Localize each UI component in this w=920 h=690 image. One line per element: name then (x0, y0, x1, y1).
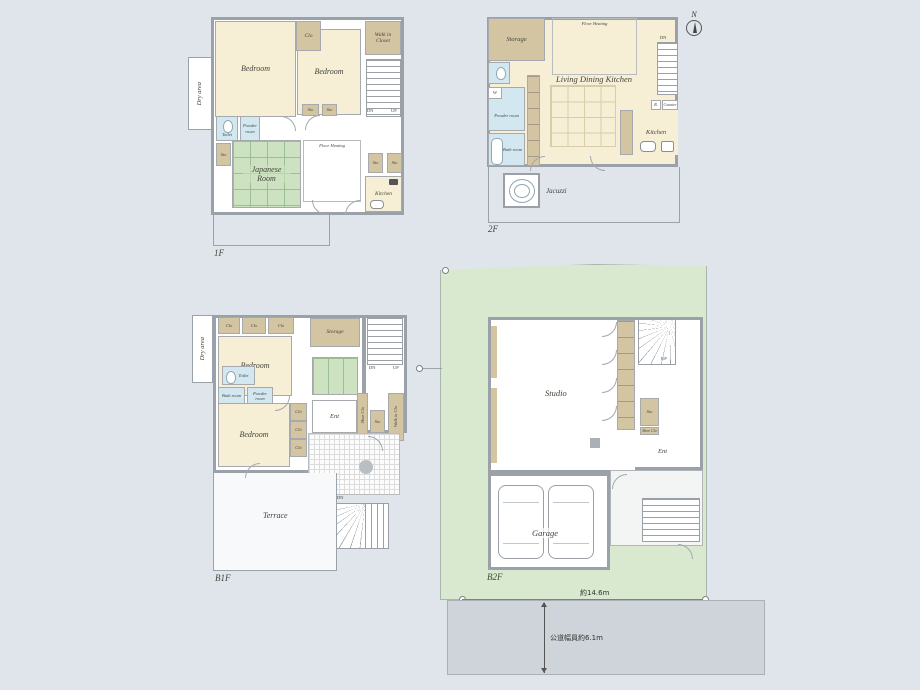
storage-b1f: Storage (310, 318, 360, 347)
car-icon (498, 485, 544, 559)
room-label: Floor Heating (582, 21, 608, 26)
counter-2f: Counter (662, 100, 678, 110)
road-width-label: 公道幅員約6.1m (550, 633, 603, 643)
clo-b1f-f: Clo (290, 439, 307, 457)
storage-2f: Storage (488, 18, 545, 61)
floor-heating-2f: Floor Heating (552, 18, 637, 75)
room-label: Toilet (238, 373, 248, 378)
floorplan-sheet: Dry area Bedroom Bedroom Clo Sto Sto Wal… (0, 0, 920, 690)
room-label: Sto (327, 107, 333, 112)
room-label: Clo (295, 427, 302, 432)
shoe-clo-b2f: Shoe Clo (640, 427, 659, 435)
room-label: Sto (221, 152, 227, 157)
road-dim-line (544, 603, 545, 673)
toilet-icon (223, 120, 233, 133)
bath-room-2f: Bath room (488, 133, 525, 166)
sink-icon (640, 141, 656, 152)
toilet-b1f: Toilet (222, 366, 255, 385)
floor-label-2f: 2F (488, 224, 498, 234)
ent-b1f: Ent (312, 400, 357, 433)
room-label: Japanese Room (243, 165, 291, 183)
room-label: Storage (326, 329, 343, 335)
stairs-up-label: UP (391, 108, 397, 113)
toilet-icon (496, 67, 506, 80)
room-label: Shoe Clo (360, 407, 365, 423)
room-label: Clo (278, 323, 285, 328)
terrace-label: Terrace (263, 511, 288, 520)
floor-label-1f: 1F (214, 248, 224, 258)
spiral-dn-label: DN (337, 495, 344, 500)
floor-grid-2f (550, 85, 616, 147)
kitchen-2f: Kitchen (634, 110, 678, 155)
room-label: Sto (392, 160, 398, 165)
room-label: R. (654, 102, 658, 107)
boundary-marker (442, 267, 449, 274)
room-label: Clo (305, 33, 313, 39)
room-label: Clo (226, 323, 233, 328)
floor-heating-1f: Floor Heating (303, 140, 361, 202)
toilet-2f (488, 62, 510, 84)
clo-b1f-a: Clo (218, 317, 240, 334)
room-label: Clo (251, 323, 258, 328)
jacuzzi-label: Jacuzzi (546, 187, 567, 195)
car-icon (548, 485, 594, 559)
clo-b1f-d: Clo (290, 403, 307, 421)
clo-b1f-c: Clo (268, 317, 294, 334)
exterior-stairs-b2f (642, 498, 700, 542)
room-label: Kitchen (375, 191, 392, 197)
room-label: Walk in Clo (393, 406, 398, 427)
room-label: Storage (506, 36, 526, 43)
column-icon (359, 460, 373, 474)
toilet-icon (226, 371, 236, 384)
ldk-label: Living Dining Kitchen (556, 74, 632, 84)
sto-1f-a: Sto (302, 104, 319, 116)
room-label: Powder room (494, 113, 520, 118)
sto-1f-c: Sto (216, 143, 231, 166)
dry-area-1f: Dry area (188, 57, 212, 130)
closet-column-b2f (617, 320, 635, 430)
toilet-1f: Toilet (216, 116, 238, 141)
jacuzzi-2f (503, 173, 540, 208)
boundary-marker (416, 365, 423, 372)
stairs-dn-label: DN (660, 35, 667, 40)
storage-column-2f (527, 75, 540, 166)
clo-b1f-e: Clo (290, 421, 307, 439)
plan-b1f: Dry area Clo Clo Clo Storage Bedroom DN … (185, 308, 440, 583)
room-label: W (493, 90, 497, 95)
floor-label-b2f: B2F (487, 572, 503, 582)
room-label: Ent (330, 413, 339, 420)
plan-b2f: Studio UP Sto Shoe Clo Ent Garage B2F 約1… (440, 258, 770, 603)
terrace-b1f (213, 473, 337, 571)
room-label: Sto (375, 419, 381, 424)
bedroom-1f-a: Bedroom (215, 21, 296, 117)
shoe-clo-b1f: Shoe Clo (357, 393, 368, 438)
plan-1f: Dry area Bedroom Bedroom Clo Sto Sto Wal… (185, 12, 437, 262)
room-label: Powder room (249, 391, 271, 401)
room-label: Walk in Closet (369, 32, 397, 45)
fridge-2f: R. (651, 100, 661, 110)
balcony-1f (213, 215, 330, 246)
stairs-dn-label: DN (367, 108, 374, 113)
room-label: Kitchen (646, 129, 666, 136)
room-label: Powder room (241, 123, 259, 133)
washer-2f: W (488, 87, 502, 99)
room-label: Bath room (222, 393, 242, 398)
closet-1f: Clo (296, 21, 321, 51)
room-label: Dry area (199, 337, 206, 360)
powder-room-1f: Powder room (240, 116, 260, 141)
floor-label-b1f: B1F (215, 573, 231, 583)
clo-b1f-b: Clo (242, 317, 266, 334)
compass-icon (686, 20, 702, 36)
room-label: Bedroom (239, 430, 268, 439)
kitchen-1f: Kitchen (365, 176, 402, 212)
compass: N (684, 10, 704, 36)
wall-strip (491, 326, 497, 378)
stove-icon (661, 141, 674, 152)
floor-hatch-icon (590, 438, 600, 448)
stairs-b2f (638, 319, 676, 365)
road: 公道幅員約6.1m (447, 600, 765, 675)
north-label: N (691, 10, 696, 19)
ent-label-b2f: Ent (658, 448, 667, 455)
japanese-room-1f: Japanese Room (232, 140, 301, 208)
plan-2f: Storage Floor Heating Living Dining Kitc… (470, 10, 718, 232)
dry-area-label: Dry area (196, 82, 203, 105)
room-label: Bath room (502, 147, 524, 152)
stairs-up-label: UP (393, 365, 399, 370)
walkin-closet-1f: Walk in Closet (365, 21, 401, 55)
kitchen-counter-2f (620, 110, 633, 155)
frontage-dim-label: 約14.6m (580, 588, 609, 598)
room-label: Sto (308, 107, 314, 112)
dim-arrow-down (541, 668, 547, 673)
stairs-dn-label: DN (369, 365, 376, 370)
bedroom-b1f-b: Bedroom (218, 403, 290, 467)
stairs-2f (657, 42, 678, 95)
stairs-up-label: UP (661, 356, 667, 361)
jacuzzi-icon (509, 179, 535, 203)
dim-arrow-up (541, 602, 547, 607)
dry-area-b1f: Dry area (192, 315, 213, 383)
room-label: Clo (295, 409, 302, 414)
sto-1f-e: Sto (387, 153, 402, 173)
stove-icon (389, 179, 398, 185)
sto-1f-b: Sto (322, 104, 337, 116)
room-label: Bedroom (314, 67, 343, 76)
sto-b2f: Sto (640, 398, 659, 426)
boundary-tick (420, 368, 442, 369)
spiral-stairs-b1f (335, 503, 389, 549)
room-label: Sto (373, 160, 379, 165)
studio-label: Studio (545, 388, 567, 398)
garage-label: Garage (532, 528, 558, 538)
room-label: Bedroom (241, 64, 270, 73)
room-label: Counter (663, 103, 676, 108)
wall-strip (491, 388, 497, 463)
room-label: Floor Heating (319, 143, 345, 148)
room-label: Sto (647, 409, 653, 414)
tatami-b1f (312, 357, 358, 395)
room-label: Clo (295, 445, 302, 450)
sink-icon (370, 200, 384, 209)
sto-b1f: Sto (370, 410, 385, 433)
room-label: Shoe Clo (642, 429, 657, 434)
sto-1f-d: Sto (368, 153, 383, 173)
stairs-b1f (367, 317, 403, 365)
bathtub-icon (491, 138, 503, 165)
